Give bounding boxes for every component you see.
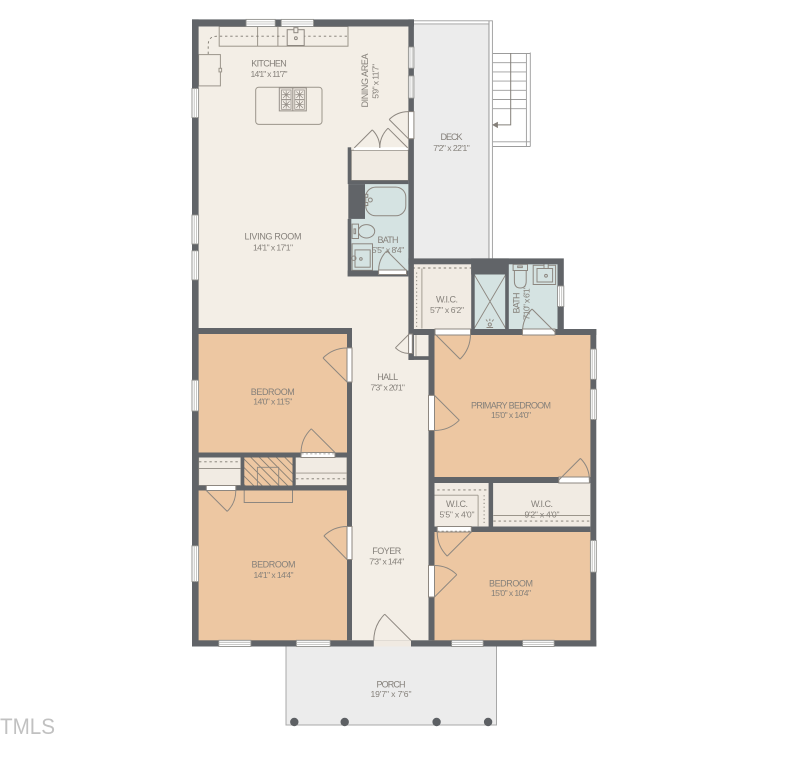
svg-text:W.I.C.: W.I.C. — [531, 499, 553, 509]
svg-text:BEDROOM: BEDROOM — [252, 560, 296, 570]
svg-text:5'5" x 8'4": 5'5" x 8'4" — [372, 245, 405, 255]
svg-text:14'0" x 11'5": 14'0" x 11'5" — [253, 397, 292, 407]
svg-text:PORCH: PORCH — [377, 680, 406, 690]
svg-text:KITCHEN: KITCHEN — [251, 59, 287, 69]
svg-text:BEDROOM: BEDROOM — [251, 387, 295, 397]
svg-text:BEDROOM: BEDROOM — [489, 579, 533, 589]
svg-text:W.I.C.: W.I.C. — [446, 499, 468, 509]
svg-text:7'2" x 22'1": 7'2" x 22'1" — [433, 143, 470, 153]
svg-text:7'3" x 14'4": 7'3" x 14'4" — [369, 557, 404, 567]
svg-text:14'1" x 14'4": 14'1" x 14'4" — [254, 570, 294, 580]
svg-text:9'2" x 4'0": 9'2" x 4'0" — [525, 510, 560, 520]
svg-text:LIVING ROOM: LIVING ROOM — [245, 232, 302, 242]
svg-text:19'7" x 7'6": 19'7" x 7'6" — [371, 689, 412, 699]
svg-text:15'0" x 10'4": 15'0" x 10'4" — [491, 588, 531, 598]
svg-text:5'7" x 6'2": 5'7" x 6'2" — [430, 305, 464, 315]
svg-text:DINING AREA: DINING AREA — [360, 54, 370, 108]
svg-text:BATH: BATH — [512, 293, 522, 314]
svg-text:BATH: BATH — [378, 235, 399, 245]
svg-text:15'0" x 14'0": 15'0" x 14'0" — [491, 410, 531, 420]
svg-text:DECK: DECK — [441, 132, 463, 142]
svg-text:14'1" x 11'7": 14'1" x 11'7" — [251, 69, 288, 79]
svg-text:HALL: HALL — [377, 372, 398, 382]
svg-text:W.I.C.: W.I.C. — [436, 295, 458, 305]
svg-text:PRIMARY BEDROOM: PRIMARY BEDROOM — [471, 401, 551, 411]
svg-text:FOYER: FOYER — [372, 546, 402, 556]
svg-text:5'9" x 11'7": 5'9" x 11'7" — [371, 64, 381, 99]
svg-text:7'10" x 6'1": 7'10" x 6'1" — [522, 286, 532, 320]
svg-text:7'3" x 20'1": 7'3" x 20'1" — [370, 383, 405, 393]
svg-text:TMLS: TMLS — [0, 714, 55, 739]
svg-text:14'1" x 17'1": 14'1" x 17'1" — [253, 243, 293, 253]
svg-text:5'5" x 4'0": 5'5" x 4'0" — [440, 510, 475, 520]
